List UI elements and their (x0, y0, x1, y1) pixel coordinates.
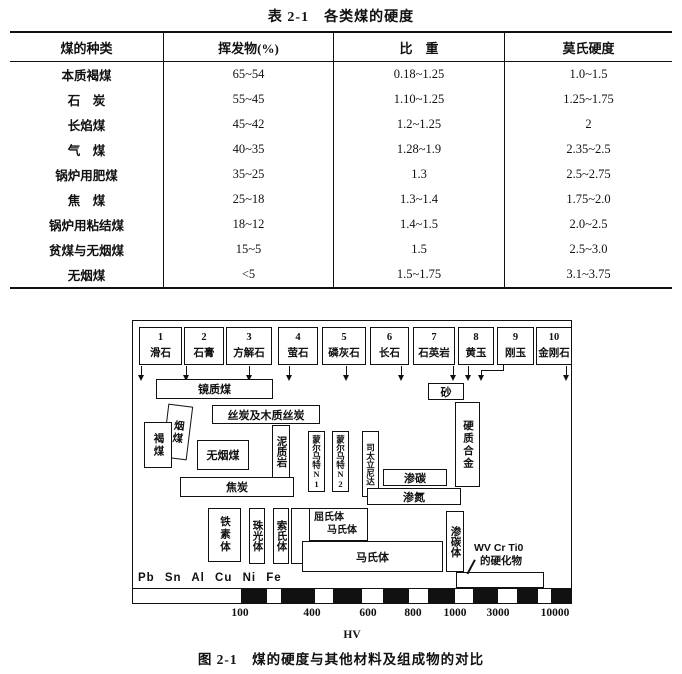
table-cell: 1.3 (334, 162, 505, 187)
table-cell: 55~45 (164, 87, 334, 112)
mineral-box-diamond: 10金刚石 (536, 327, 572, 365)
tick-label: 400 (290, 607, 334, 619)
tick-label: 800 (391, 607, 435, 619)
figure-caption: 图 2-1 煤的硬度与其他材料及组成物的对比 (0, 648, 682, 668)
scale-segment (551, 589, 571, 603)
box-label: 渗氮 (403, 489, 425, 505)
scale-segment (315, 589, 333, 603)
table-cell: 1.2~1.25 (334, 112, 505, 137)
mineral-number: 4 (279, 330, 317, 346)
table-cell: 65~54 (164, 62, 334, 87)
tick-label: 1000 (433, 607, 477, 619)
mineral-box-fluorite: 4萤石 (278, 327, 318, 365)
table-cell: 45~42 (164, 112, 334, 137)
mineral-number: 2 (185, 330, 223, 346)
mineral-number: 9 (498, 330, 533, 346)
header-cell: 莫氏硬度 (505, 33, 672, 61)
scale-segment (455, 589, 474, 603)
anthracite-box: 无烟煤 (197, 440, 249, 470)
troostite-martensite-box: 屈氏体 马氏体 (309, 508, 368, 541)
carbide-note: WV Cr Ti0 的硬化物 (474, 542, 523, 568)
scale-segment (498, 589, 517, 603)
table-cell: 1.3~1.4 (334, 187, 505, 212)
corundum-elbow-line (482, 365, 504, 371)
table-row: 气 煤 40~35 1.28~1.9 2.35~2.5 (10, 137, 672, 162)
box-label: 无烟煤 (207, 447, 240, 463)
table-row: 贫煤与无烟煤 15~5 1.5 2.5~3.0 (10, 237, 672, 262)
scale-segment (517, 589, 538, 603)
tick-label: 600 (346, 607, 390, 619)
mineral-name: 萤石 (279, 346, 317, 362)
table-cell: 2.5~2.75 (505, 162, 672, 187)
box-label: 渗碳 (404, 470, 426, 486)
box-label: 蒙尔马特N2 (335, 435, 347, 489)
box-label: 索氏体 (274, 520, 289, 552)
carbide-note-line1: WV Cr Ti0 (474, 542, 523, 555)
table-cell: 40~35 (164, 137, 334, 162)
mineral-name: 长石 (371, 346, 408, 362)
carbide-compound-box (456, 572, 544, 588)
mineral-name: 石英岩 (414, 346, 454, 362)
table-cell: 1.75~2.0 (505, 187, 672, 212)
table-cell: 2.5~3.0 (505, 237, 672, 262)
table-cell: 2.35~2.5 (505, 137, 672, 162)
mineral-box-talc: 1滑石 (139, 327, 182, 365)
coke-box: 焦炭 (180, 477, 294, 497)
scale-segment (133, 589, 241, 603)
sand-box: 砂 (428, 383, 464, 400)
tick-label: 10000 (533, 607, 577, 619)
box-label: 马氏体 (356, 549, 389, 565)
mineral-box-feldspar: 6长石 (370, 327, 409, 365)
table-row: 长焰煤 45~42 1.2~1.25 2 (10, 112, 672, 137)
table-row: 焦 煤 25~18 1.3~1.4 1.75~2.0 (10, 187, 672, 212)
table-cell: 锅炉用肥煤 (10, 162, 164, 187)
box-label: 马氏体 (314, 524, 357, 537)
table-cell: 1.10~1.25 (334, 87, 505, 112)
table-row: 石 炭 55~45 1.10~1.25 1.25~1.75 (10, 87, 672, 112)
hardness-figure-frame: 1滑石 2石膏 3方解石 4萤石 5磷灰石 6长石 7石英岩 8黄玉 9刚玉 1… (132, 320, 572, 604)
mineral-name: 刚玉 (498, 346, 533, 362)
table-title: 表 2-1 各类煤的硬度 (0, 6, 682, 26)
mineral-name: 石膏 (185, 346, 223, 362)
martensite-box: 马氏体 (302, 541, 443, 572)
vitrinite-coal-box: 镜质煤 (156, 379, 273, 399)
table-row: 锅炉用肥煤 35~25 1.3 2.5~2.75 (10, 162, 672, 187)
scale-segment (267, 589, 281, 603)
table-cell: 本质褐煤 (10, 62, 164, 87)
coal-hardness-table: 煤的种类 挥发物(%) 比 重 莫氏硬度 本质褐煤 65~54 0.18~1.2… (10, 31, 672, 289)
monel-n2-box: 蒙尔马特N2 (332, 431, 349, 492)
mineral-number: 8 (459, 330, 493, 346)
lignite-box: 褐煤 (144, 422, 172, 468)
down-arrow (343, 366, 350, 382)
mineral-name: 滑石 (140, 346, 181, 362)
down-arrow (563, 366, 570, 382)
table-header-row: 煤的种类 挥发物(%) 比 重 莫氏硬度 (10, 33, 672, 62)
scale-segment (383, 589, 409, 603)
table-cell: 2.0~2.5 (505, 212, 672, 237)
box-label: 蒙尔马特N1 (311, 435, 323, 489)
mineral-box-topaz: 8黄玉 (458, 327, 494, 365)
box-label: 丝炭及木质丝炭 (228, 407, 305, 423)
cementite-box: 渗碳体 (446, 511, 464, 572)
fusain-box: 丝炭及木质丝炭 (212, 405, 320, 424)
scale-segment (538, 589, 551, 603)
hv-scale-bar (133, 588, 571, 603)
down-arrow (286, 366, 293, 382)
table-cell: 气 煤 (10, 137, 164, 162)
down-arrow (398, 366, 405, 382)
scale-segment (362, 589, 383, 603)
metals-label: Pb Sn Al Cu Ni Fe (138, 572, 282, 584)
table-cell: 1.25~1.75 (505, 87, 672, 112)
table-cell: 35~25 (164, 162, 334, 187)
mineral-box-calcite: 3方解石 (226, 327, 272, 365)
table-cell: 石 炭 (10, 87, 164, 112)
axis-label: HV (132, 629, 572, 641)
table-cell: <5 (164, 262, 334, 287)
nitrided-box: 渗氮 (367, 488, 461, 505)
table-cell: 1.4~1.5 (334, 212, 505, 237)
box-label: 硬质合金 (460, 420, 475, 470)
box-label: 司太立尼达 (365, 443, 377, 486)
hv-axis: 100 400 600 800 1000 3000 10000 HV (132, 607, 572, 647)
table-cell: 焦 煤 (10, 187, 164, 212)
down-arrow (138, 366, 145, 382)
tick-label: 100 (218, 607, 262, 619)
table-cell: 18~12 (164, 212, 334, 237)
table-cell: 25~18 (164, 187, 334, 212)
mineral-box-apatite: 5磷灰石 (322, 327, 366, 365)
table-row: 锅炉用粘结煤 18~12 1.4~1.5 2.0~2.5 (10, 212, 672, 237)
mineral-number: 10 (537, 330, 571, 346)
scale-segment (409, 589, 428, 603)
mineral-name: 磷灰石 (323, 346, 365, 362)
carbide-note-line2: 的硬化物 (474, 555, 523, 568)
box-label: 铁素体 (217, 516, 232, 554)
box-label: 泥质岩 (274, 436, 289, 468)
table-cell: 0.18~1.25 (334, 62, 505, 87)
table-cell: 锅炉用粘结煤 (10, 212, 164, 237)
mineral-number: 6 (371, 330, 408, 346)
table-cell: 1.0~1.5 (505, 62, 672, 87)
down-arrow (465, 366, 472, 382)
down-arrow (450, 366, 457, 382)
scale-segment (473, 589, 498, 603)
table-cell: 2 (505, 112, 672, 137)
table-cell: 1.5~1.75 (334, 262, 505, 287)
mineral-box-quartzite: 7石英岩 (413, 327, 455, 365)
ferrite-box: 铁素体 (208, 508, 241, 562)
monel-n1-box: 蒙尔马特N1 (308, 431, 325, 492)
table-cell: 1.5 (334, 237, 505, 262)
box-label: 渗碳体 (448, 526, 463, 558)
down-arrow (478, 370, 485, 382)
mineral-number: 1 (140, 330, 181, 346)
sorbite-box: 索氏体 (273, 508, 289, 564)
mineral-name: 方解石 (227, 346, 271, 362)
box-label: 镜质煤 (198, 381, 231, 397)
tick-label: 3000 (476, 607, 520, 619)
header-cell: 比 重 (334, 33, 505, 61)
box-label: 褐煤 (151, 433, 166, 458)
mineral-name: 金刚石 (537, 346, 571, 362)
box-label: 珠光体 (250, 520, 265, 552)
table-cell: 长焰煤 (10, 112, 164, 137)
mineral-box-gypsum: 2石膏 (184, 327, 224, 365)
hard-alloy-box: 硬质合金 (455, 402, 480, 487)
box-label: 屈氏体 (314, 511, 344, 524)
header-cell: 煤的种类 (10, 33, 164, 61)
table-cell: 15~5 (164, 237, 334, 262)
table-cell: 贫煤与无烟煤 (10, 237, 164, 262)
box-label: 焦炭 (226, 479, 248, 495)
scale-segment (241, 589, 268, 603)
table-cell: 1.28~1.9 (334, 137, 505, 162)
mineral-number: 5 (323, 330, 365, 346)
scale-segment (333, 589, 362, 603)
carburized-box: 渗碳 (383, 469, 447, 486)
scale-segment (281, 589, 315, 603)
table-cell: 无烟煤 (10, 262, 164, 287)
scale-segment (428, 589, 455, 603)
mineral-name: 黄玉 (459, 346, 493, 362)
mudstone-box: 泥质岩 (272, 425, 290, 478)
table-cell: 3.1~3.75 (505, 262, 672, 287)
table-row: 本质褐煤 65~54 0.18~1.25 1.0~1.5 (10, 62, 672, 87)
pearlite-box: 珠光体 (249, 508, 265, 564)
header-cell: 挥发物(%) (164, 33, 334, 61)
box-label: 砂 (441, 384, 452, 400)
mineral-number: 7 (414, 330, 454, 346)
mineral-number: 3 (227, 330, 271, 346)
mineral-box-corundum: 9刚玉 (497, 327, 534, 365)
table-row: 无烟煤 <5 1.5~1.75 3.1~3.75 (10, 262, 672, 287)
